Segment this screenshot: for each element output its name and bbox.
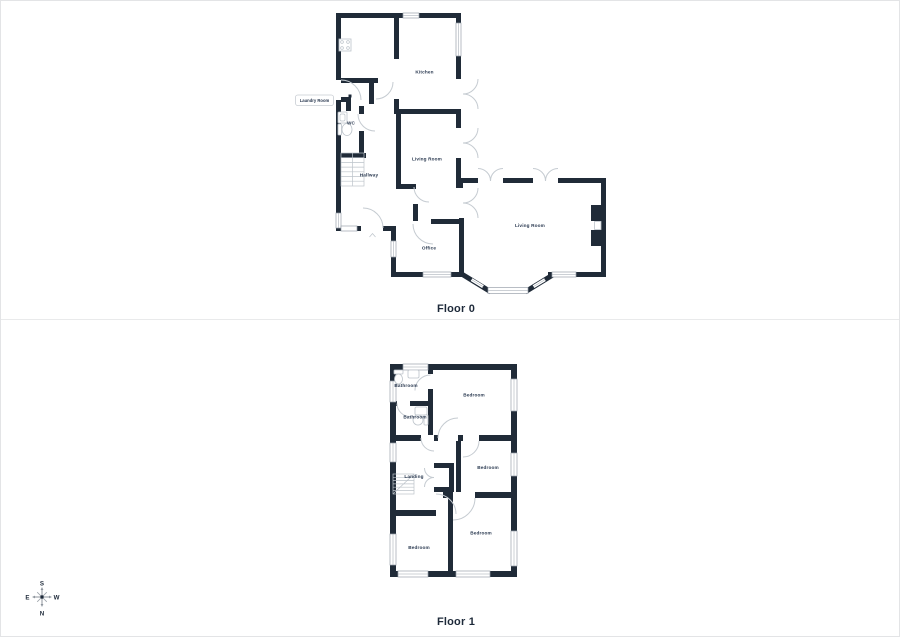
compass-south-label: S bbox=[40, 581, 44, 588]
stove-icon bbox=[339, 39, 351, 51]
staircase-icon bbox=[341, 153, 364, 186]
fireplace-icon bbox=[591, 205, 601, 246]
room-label-landing: Landing bbox=[404, 474, 423, 479]
room-label-bedroom-bottom-right: Bedroom bbox=[470, 531, 492, 536]
bathroom-top-toilet-icon bbox=[394, 370, 403, 384]
room-label-bathroom-top: Bathroom bbox=[394, 383, 417, 388]
room-label-kitchen: Kitchen bbox=[415, 70, 433, 75]
room-label-living-room-large: Living Room bbox=[515, 223, 545, 228]
compass-west-label: W bbox=[54, 595, 60, 602]
room-label-bathroom-middle: Bathroom bbox=[403, 415, 426, 420]
room-label-bedroom-right: Bedroom bbox=[477, 465, 499, 470]
room-label-office: Office bbox=[422, 246, 436, 251]
floor1-plan: Bathroom Bathroom Bedroom Bedroom Bedroo… bbox=[390, 364, 517, 628]
bathroom-top-sink-icon bbox=[408, 370, 419, 378]
room-label-wc: WC bbox=[347, 121, 356, 126]
label-anchor-dot bbox=[349, 95, 352, 98]
room-label-laundry: Laundry Room bbox=[300, 98, 330, 103]
compass-icon: S N E W bbox=[25, 581, 59, 618]
room-label-bedroom-top-right: Bedroom bbox=[463, 393, 485, 398]
compass-north-label: N bbox=[40, 611, 45, 618]
floorplan-page: Laundry Room Kitchen Living Room Living … bbox=[0, 0, 900, 637]
floorplan-svg: Laundry Room Kitchen Living Room Living … bbox=[1, 1, 900, 637]
room-label-hallway: Hallway bbox=[360, 173, 379, 178]
wc-sink-icon bbox=[338, 112, 347, 123]
room-label-living-room-small: Living Room bbox=[412, 157, 442, 162]
room-label-bedroom-bottom-left: Bedroom bbox=[408, 545, 430, 550]
floor0-plan: Laundry Room Kitchen Living Room Living … bbox=[296, 13, 607, 315]
floor0-title: Floor 0 bbox=[437, 303, 475, 315]
floor1-title: Floor 1 bbox=[437, 616, 475, 628]
compass-east-label: E bbox=[25, 595, 29, 602]
entrance-arrow-icon bbox=[370, 234, 376, 238]
bay-window bbox=[463, 275, 554, 294]
